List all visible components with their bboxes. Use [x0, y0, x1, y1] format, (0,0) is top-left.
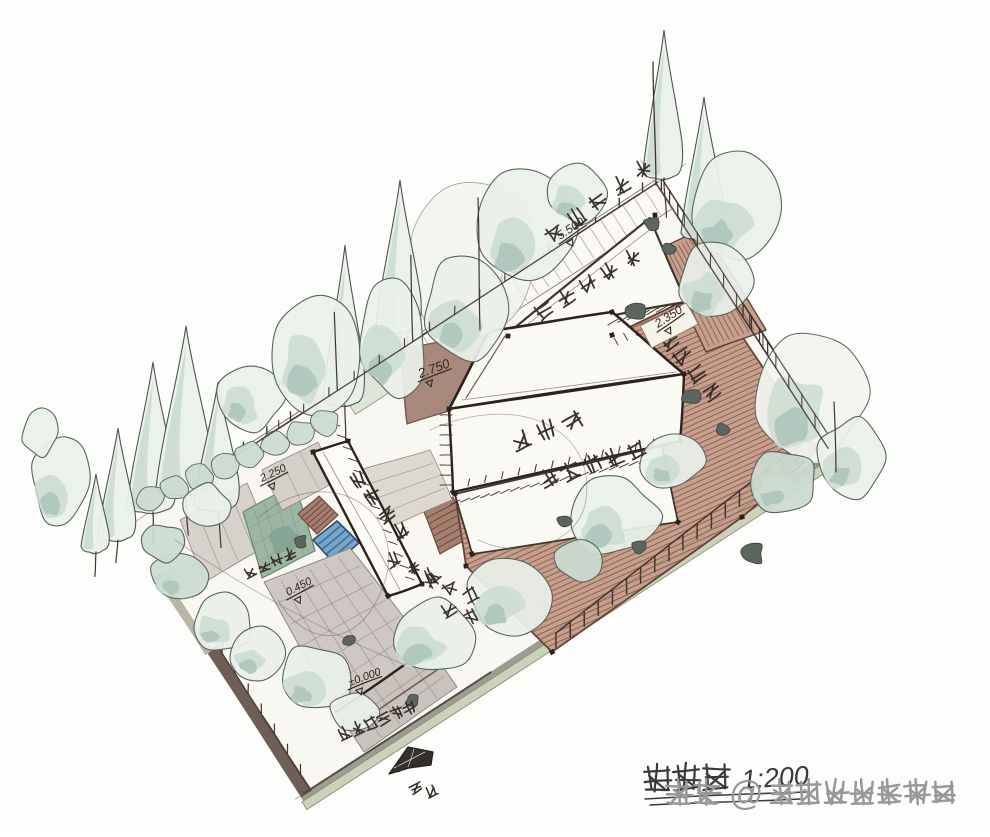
svg-text:@: @ [729, 775, 764, 813]
